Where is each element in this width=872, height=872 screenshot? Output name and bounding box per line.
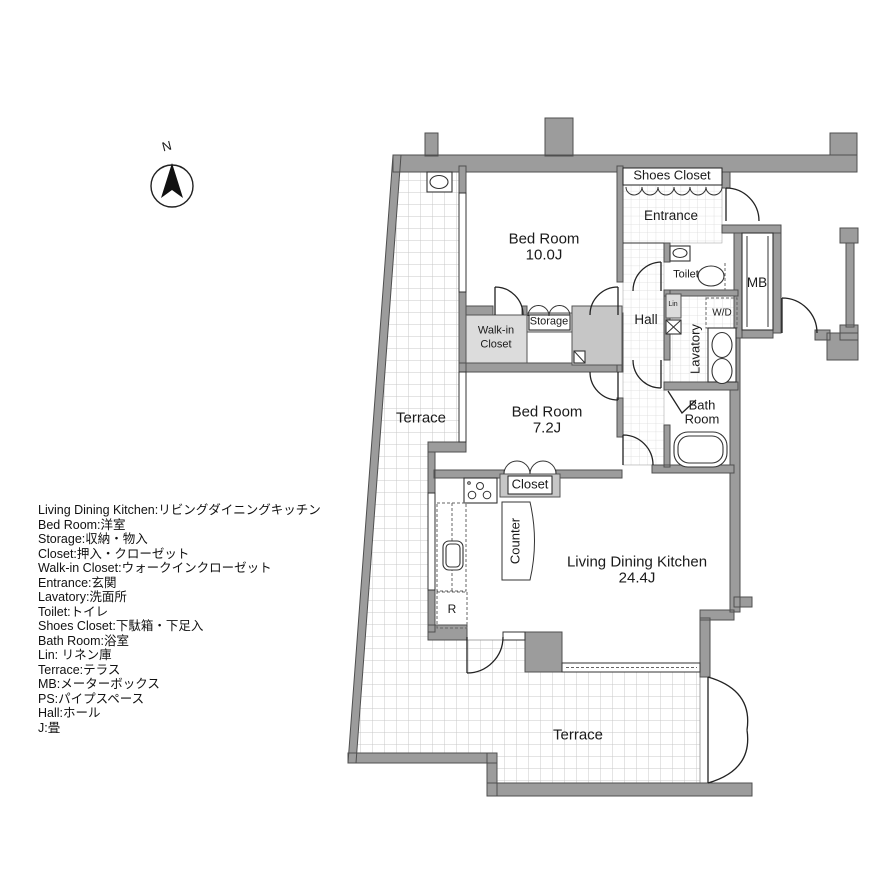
legend-item: Lin: リネン庫 [38,648,321,663]
closet-label: Closet [512,478,549,493]
compass-needle [161,163,183,198]
legend-item: J:畳 [38,721,321,736]
kitchen-window [428,493,435,590]
floor-plan-drawing [0,0,872,872]
legend-item: Toilet:トイレ [38,605,321,620]
lavatory-label: Lavatory [689,324,704,374]
entrance-label: Entrance [644,208,698,224]
terrace-double-door [708,677,748,783]
ldk-label: Living Dining Kitchen [567,553,707,570]
mb-label: MB [747,275,767,291]
legend-item: Closet:押入・クローゼット [38,547,321,562]
counter-label: Counter [509,518,524,564]
hall-floor [623,243,664,465]
legend-item: Hall:ホール [38,706,321,721]
walk-in-closet-door [495,287,523,315]
bedroom2-label: Bed Room [512,403,583,420]
legend-item: Lavatory:洗面所 [38,590,321,605]
closet-folding-door [504,461,556,474]
legend-item: MB:メーターボックス [38,677,321,692]
legend-item: Entrance:玄関 [38,576,321,591]
legend-item: Living Dining Kitchen:リビングダイニングキッチン [38,503,321,518]
bedroom2-window [459,372,466,442]
hall-label: Hall [634,312,657,328]
wd-label: W/D [712,307,731,319]
storage-label: Storage [530,316,569,329]
bedroom1-window [459,193,466,292]
bedroom1-size: 10.0J [526,246,563,263]
legend-item: PS:パイプスペース [38,692,321,707]
toilet-label: Toilet [673,269,699,282]
refrigerator-label: R [448,603,457,617]
service-door [782,298,817,333]
walk-in-closet-label-line2: Closet [480,339,511,352]
bath-label-line2: Room [685,413,720,428]
legend-item: Terrace:テラス [38,663,321,678]
legend-item: Shoes Closet:下駄箱・下足入 [38,619,321,634]
terrace-upper-label: Terrace [396,409,446,426]
legend: Living Dining Kitchen:リビングダイニングキッチン Bed … [38,503,321,735]
lin-label: Lin [668,301,677,309]
shoes-closet-label: Shoes Closet [633,169,710,184]
legend-item: Walk-in Closet:ウォークインクローゼット [38,561,321,576]
walk-in-closet-label-line1: Walk-in [478,325,514,338]
entrance-door [726,188,759,221]
kitchen-low-window [503,632,525,640]
terrace-lower-label: Terrace [553,726,603,743]
bedroom2-door [590,372,618,400]
floor-plan-page: N Bed Room 10.0J Bed Room 7.2J Living Di… [0,0,872,872]
legend-item: Bed Room:洋室 [38,518,321,533]
bedroom2-size: 7.2J [533,419,561,436]
legend-item: Bath Room:浴室 [38,634,321,649]
ldk-size: 24.4J [619,569,656,586]
toilet-bowl [698,266,724,286]
legend-item: Storage:収納・物入 [38,532,321,547]
bedroom1-label: Bed Room [509,230,580,247]
